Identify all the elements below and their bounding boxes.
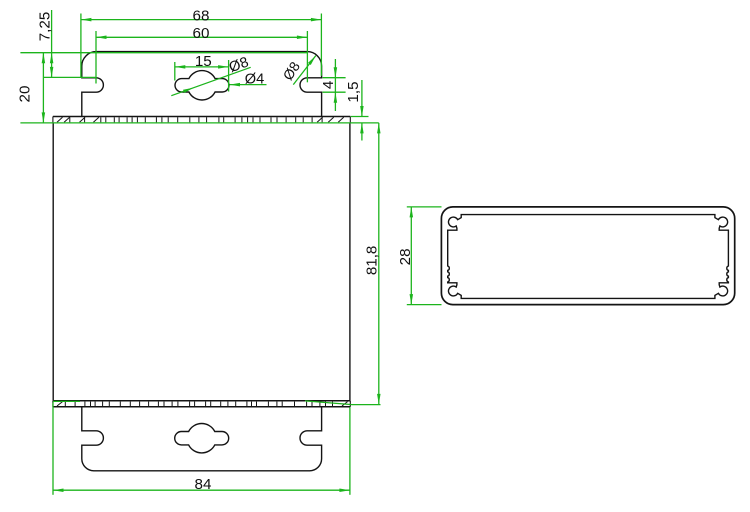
svg-text:84: 84	[195, 476, 212, 493]
svg-text:4: 4	[320, 81, 337, 89]
svg-text:28: 28	[397, 248, 414, 265]
svg-text:20: 20	[17, 86, 34, 103]
svg-text:15: 15	[195, 53, 212, 70]
svg-text:60: 60	[193, 25, 210, 42]
svg-text:1,5: 1,5	[345, 81, 362, 102]
svg-text:81,8: 81,8	[364, 246, 381, 276]
svg-text:68: 68	[193, 7, 210, 24]
svg-text:7,25: 7,25	[37, 12, 54, 42]
svg-text:Ø4: Ø4	[245, 71, 264, 87]
